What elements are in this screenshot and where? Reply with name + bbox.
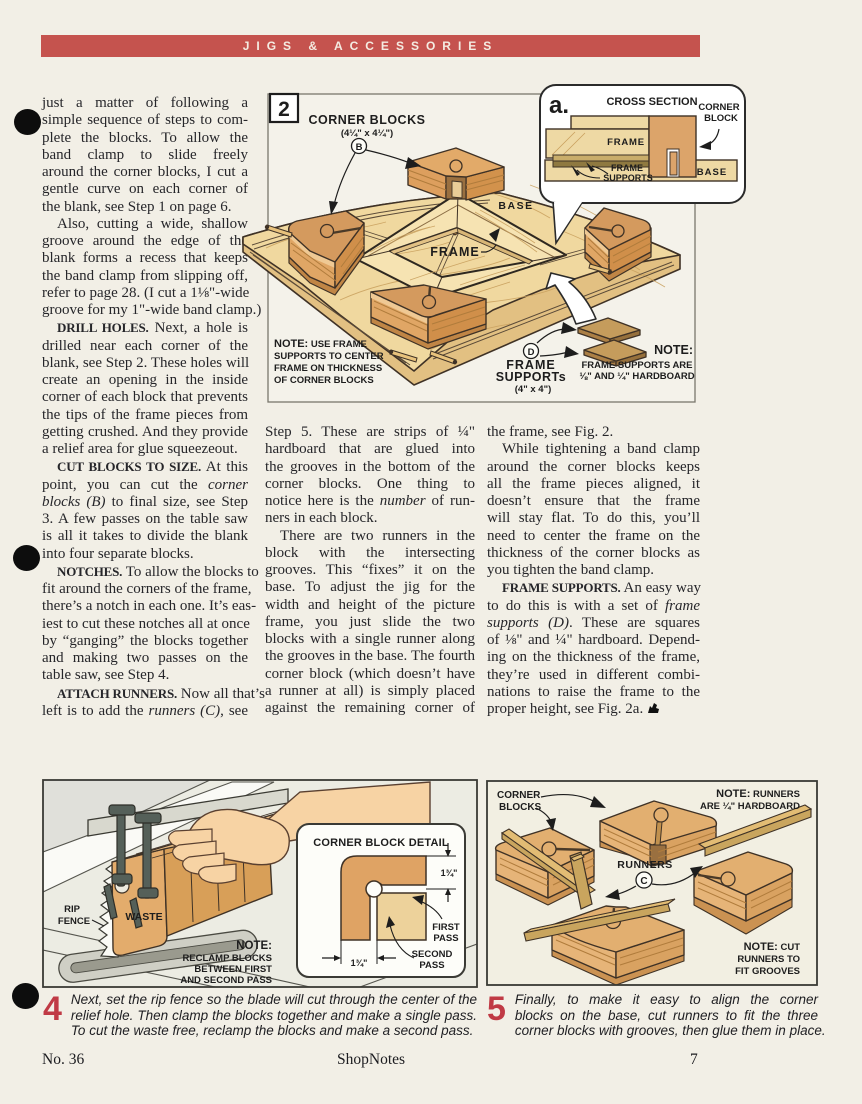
svg-text:1¾": 1¾" [441, 868, 458, 878]
svg-text:FIRST: FIRST [432, 922, 460, 933]
svg-text:SUPPORTs: SUPPORTs [496, 370, 566, 384]
svg-text:NOTE: CUT: NOTE: CUT [744, 941, 801, 953]
svg-text:RIP: RIP [64, 904, 81, 915]
svg-text:FRAME: FRAME [611, 163, 643, 173]
svg-text:C: C [640, 876, 647, 887]
svg-text:FRAME ON THICKNESS: FRAME ON THICKNESS [274, 363, 382, 374]
svg-text:FRAME SUPPORTS ARE: FRAME SUPPORTS ARE [581, 360, 692, 371]
svg-text:D: D [528, 347, 535, 358]
svg-text:NOTE: RUNNERS: NOTE: RUNNERS [716, 788, 800, 800]
svg-text:AND SECOND PASS: AND SECOND PASS [180, 975, 272, 986]
svg-text:NOTE:: NOTE: [654, 343, 693, 357]
svg-text:CORNER BLOCK DETAIL: CORNER BLOCK DETAIL [313, 837, 449, 849]
svg-text:RUNNERS TO: RUNNERS TO [737, 954, 800, 965]
svg-text:PASS: PASS [433, 933, 458, 944]
svg-text:1¾": 1¾" [351, 958, 368, 968]
svg-text:BASE: BASE [697, 167, 727, 178]
svg-text:CORNER: CORNER [497, 790, 541, 801]
svg-text:BASE: BASE [498, 200, 533, 212]
svg-text:⅛" AND ¼" HARDBOARD: ⅛" AND ¼" HARDBOARD [579, 371, 694, 382]
svg-text:a.: a. [549, 92, 569, 119]
svg-text:B: B [356, 142, 363, 153]
svg-text:OF CORNER BLOCKS: OF CORNER BLOCKS [274, 375, 374, 386]
svg-text:SUPPORTS: SUPPORTS [603, 173, 653, 183]
svg-text:RECLAMP BLOCKS: RECLAMP BLOCKS [182, 953, 272, 964]
svg-text:CROSS SECTION: CROSS SECTION [606, 96, 697, 108]
svg-text:2: 2 [278, 98, 290, 121]
svg-text:NOTE: USE FRAME: NOTE: USE FRAME [274, 338, 367, 350]
svg-text:SUPPORTS TO CENTER: SUPPORTS TO CENTER [274, 351, 384, 362]
svg-text:FENCE: FENCE [58, 916, 90, 927]
svg-text:(4¼" x 4¼"): (4¼" x 4¼") [341, 128, 393, 139]
svg-text:WASTE: WASTE [125, 911, 162, 923]
svg-text:CORNER BLOCKS: CORNER BLOCKS [309, 113, 426, 127]
svg-text:BLOCK: BLOCK [704, 113, 738, 124]
svg-text:FRAME: FRAME [430, 245, 479, 259]
svg-text:BLOCKS: BLOCKS [499, 802, 542, 813]
svg-text:FIT GROOVES: FIT GROOVES [735, 966, 800, 977]
svg-text:SECOND: SECOND [412, 949, 453, 960]
svg-text:RUNNERS: RUNNERS [617, 859, 672, 871]
svg-text:CORNER: CORNER [698, 102, 739, 113]
svg-text:(4" x 4"): (4" x 4") [515, 384, 551, 395]
svg-text:PASS: PASS [419, 960, 444, 971]
svg-text:ARE ¼" HARDBOARD: ARE ¼" HARDBOARD [700, 801, 800, 812]
svg-text:BETWEEN FIRST: BETWEEN FIRST [194, 964, 272, 975]
svg-text:NOTE:: NOTE: [236, 940, 272, 952]
svg-text:FRAME: FRAME [607, 137, 645, 148]
